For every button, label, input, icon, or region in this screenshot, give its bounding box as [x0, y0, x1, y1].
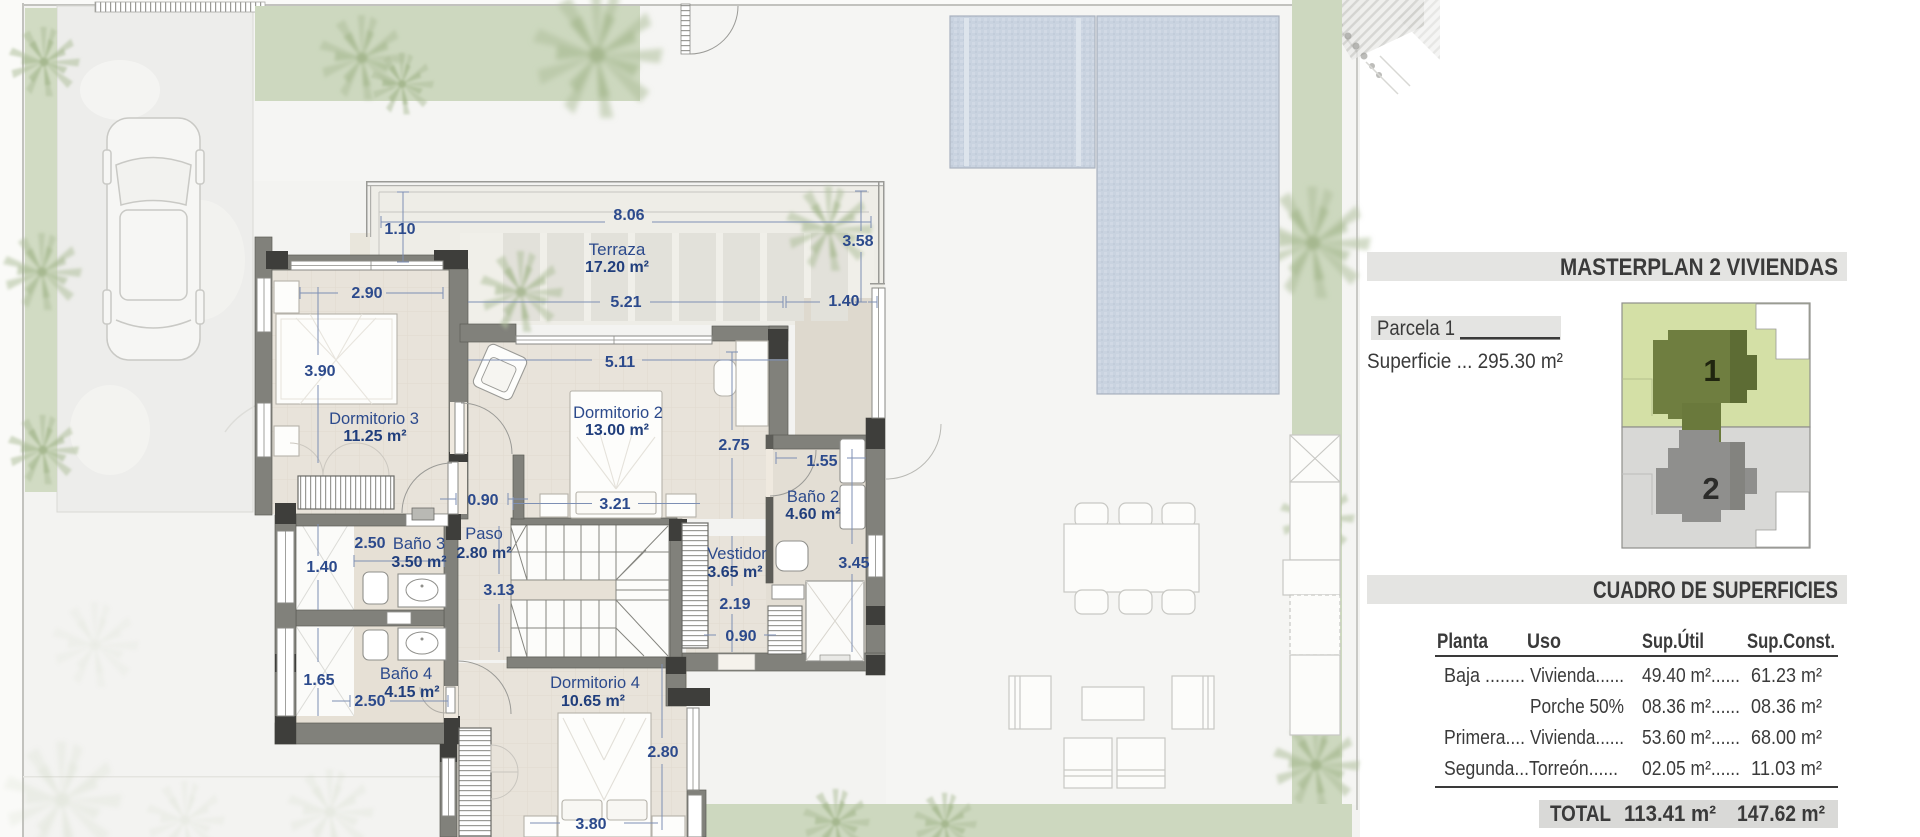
svg-text:2.50: 2.50 — [354, 693, 385, 710]
svg-text:147.62 m²: 147.62 m² — [1737, 801, 1825, 826]
svg-text:Sup.Útil: Sup.Útil — [1642, 629, 1704, 653]
svg-text:68.00 m²: 68.00 m² — [1751, 727, 1822, 749]
svg-text:13.00 m²: 13.00 m² — [585, 422, 649, 439]
svg-text:3.58: 3.58 — [842, 233, 873, 250]
svg-text:10.65 m²: 10.65 m² — [561, 693, 625, 710]
svg-text:8.06: 8.06 — [613, 207, 644, 224]
svg-text:Terraza: Terraza — [589, 240, 646, 259]
svg-text:Dormitorio 4: Dormitorio 4 — [550, 674, 640, 692]
svg-text:Porche 50%: Porche 50% — [1530, 696, 1624, 718]
svg-text:Paso: Paso — [465, 525, 503, 543]
svg-text:Baño 4: Baño 4 — [380, 665, 432, 683]
svg-text:2.75: 2.75 — [718, 437, 749, 454]
svg-text:08.36 m²......: 08.36 m²...... — [1642, 696, 1740, 718]
svg-text:Baño 3: Baño 3 — [393, 535, 445, 553]
svg-text:1.55: 1.55 — [806, 453, 837, 470]
svg-text:113.41 m²: 113.41 m² — [1624, 801, 1716, 826]
svg-text:1.10: 1.10 — [384, 221, 415, 238]
svg-text:11.25 m²: 11.25 m² — [343, 428, 406, 445]
svg-text:MASTERPLAN 2 VIVIENDAS: MASTERPLAN 2 VIVIENDAS — [1560, 254, 1838, 281]
svg-text:Sup.Const.: Sup.Const. — [1747, 630, 1835, 653]
svg-text:TOTAL: TOTAL — [1550, 801, 1611, 826]
svg-text:02.05 m²......: 02.05 m²...... — [1642, 758, 1740, 780]
svg-text:08.36 m²: 08.36 m² — [1751, 696, 1822, 718]
svg-text:4.15 m²: 4.15 m² — [384, 684, 439, 701]
svg-text:3.21: 3.21 — [599, 496, 630, 513]
svg-text:Primera....: Primera.... — [1444, 727, 1525, 749]
svg-text:Baja ........: Baja ........ — [1444, 665, 1525, 687]
svg-text:1.65: 1.65 — [303, 672, 334, 689]
svg-text:Vivienda......: Vivienda...... — [1530, 727, 1624, 749]
svg-text:Baño 2: Baño 2 — [787, 488, 839, 506]
svg-text:Dormitorio 2: Dormitorio 2 — [573, 404, 663, 422]
svg-text:11.03 m²: 11.03 m² — [1751, 758, 1822, 780]
svg-text:Vivienda......: Vivienda...... — [1530, 665, 1624, 687]
svg-text:49.40 m²......: 49.40 m²...... — [1642, 665, 1740, 687]
svg-text:Segunda...Torreón......: Segunda...Torreón...... — [1444, 758, 1618, 780]
svg-text:3.45: 3.45 — [838, 555, 869, 572]
svg-text:CUADRO DE SUPERFICIES: CUADRO DE SUPERFICIES — [1593, 577, 1838, 604]
svg-text:5.11: 5.11 — [605, 354, 635, 371]
svg-text:2.80: 2.80 — [647, 744, 678, 761]
svg-text:17.20 m²: 17.20 m² — [585, 259, 649, 276]
svg-text:Dormitorio 3: Dormitorio 3 — [329, 410, 419, 428]
svg-text:5.21: 5.21 — [610, 294, 641, 311]
svg-text:1: 1 — [1703, 353, 1720, 388]
svg-text:2.50: 2.50 — [354, 535, 385, 552]
svg-text:2: 2 — [1702, 471, 1719, 506]
svg-text:2.80 m²: 2.80 m² — [456, 545, 511, 562]
svg-text:3.13: 3.13 — [483, 582, 514, 599]
svg-text:3.65 m²: 3.65 m² — [707, 564, 762, 581]
svg-text:2.90: 2.90 — [351, 285, 382, 302]
svg-text:61.23 m²: 61.23 m² — [1751, 665, 1822, 687]
svg-text:3.90: 3.90 — [304, 363, 335, 380]
svg-text:Superficie ... 295.30 m²: Superficie ... 295.30 m² — [1367, 350, 1563, 373]
svg-text:53.60 m²......: 53.60 m²...... — [1642, 727, 1740, 749]
svg-text:Vestidor: Vestidor — [707, 545, 767, 563]
svg-text:0.90: 0.90 — [725, 628, 756, 645]
svg-text:Parcela 1: Parcela 1 — [1377, 317, 1455, 340]
svg-text:1.40: 1.40 — [306, 559, 337, 576]
svg-text:3.80: 3.80 — [575, 816, 606, 833]
svg-text:3.50 m²: 3.50 m² — [391, 554, 446, 571]
svg-text:4.60 m²: 4.60 m² — [785, 506, 840, 523]
svg-text:Planta: Planta — [1437, 630, 1488, 653]
svg-text:Uso: Uso — [1527, 630, 1561, 653]
svg-text:2.19: 2.19 — [719, 596, 750, 613]
svg-text:0.90: 0.90 — [467, 492, 498, 509]
svg-text:1.40: 1.40 — [828, 293, 859, 310]
